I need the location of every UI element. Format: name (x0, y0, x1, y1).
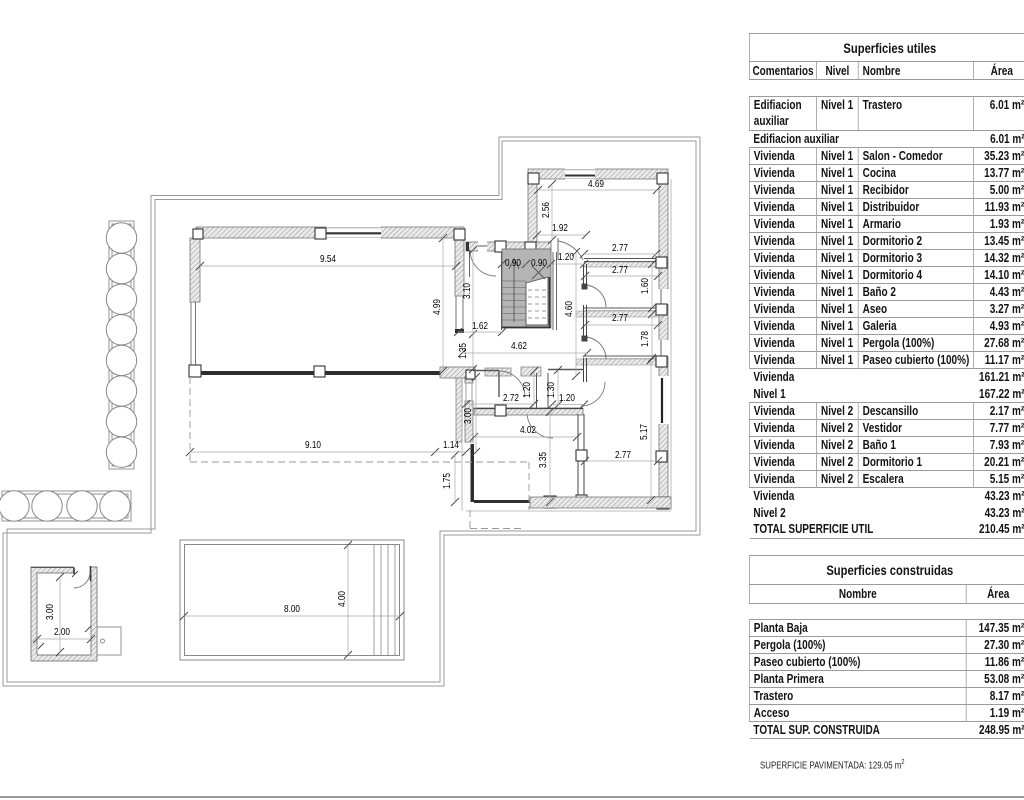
svg-text:4.62: 4.62 (511, 340, 527, 352)
svg-text:1.60: 1.60 (639, 278, 651, 294)
svg-text:1.30: 1.30 (545, 382, 557, 398)
svg-text:1.14: 1.14 (443, 439, 459, 451)
svg-text:1.20: 1.20 (559, 392, 575, 404)
svg-text:2.77: 2.77 (615, 449, 631, 461)
svg-text:1.75: 1.75 (441, 473, 453, 489)
svg-text:0.90: 0.90 (531, 257, 547, 269)
svg-text:4.99: 4.99 (431, 299, 443, 315)
svg-text:1.62: 1.62 (472, 320, 488, 332)
svg-text:4.69: 4.69 (588, 178, 604, 190)
svg-text:2.77: 2.77 (612, 264, 628, 276)
svg-text:0.90: 0.90 (505, 257, 521, 269)
svg-text:3.00: 3.00 (462, 408, 474, 424)
svg-text:2.72: 2.72 (503, 392, 519, 404)
svg-text:2.77: 2.77 (612, 312, 628, 324)
svg-text:2.00: 2.00 (54, 626, 70, 638)
svg-text:1.20: 1.20 (558, 251, 574, 263)
svg-text:1.78: 1.78 (639, 331, 651, 347)
svg-text:2.77: 2.77 (612, 242, 628, 254)
svg-text:9.10: 9.10 (305, 439, 321, 451)
svg-text:4.60: 4.60 (563, 301, 575, 317)
svg-text:5.17: 5.17 (638, 424, 650, 440)
svg-text:3.00: 3.00 (44, 604, 56, 620)
svg-text:4.02: 4.02 (520, 424, 536, 436)
svg-text:2.56: 2.56 (540, 202, 552, 218)
svg-text:3.35: 3.35 (537, 452, 549, 468)
svg-text:9.54: 9.54 (320, 253, 336, 265)
svg-text:3.10: 3.10 (461, 283, 473, 299)
svg-text:1.92: 1.92 (552, 222, 568, 234)
svg-text:8.00: 8.00 (284, 603, 300, 615)
svg-text:1.35: 1.35 (457, 343, 469, 359)
svg-text:1.20: 1.20 (521, 382, 533, 398)
svg-text:4.00: 4.00 (336, 591, 348, 607)
